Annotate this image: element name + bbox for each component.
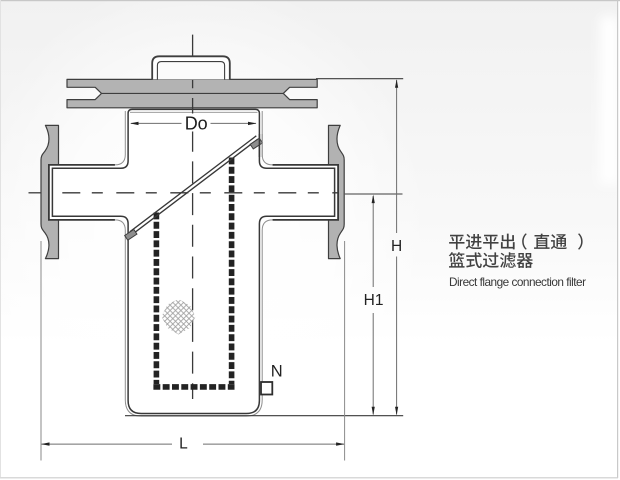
svg-text:H1: H1: [364, 292, 384, 309]
svg-text:L: L: [179, 435, 188, 452]
svg-text:N: N: [271, 362, 283, 380]
svg-text:Do: Do: [185, 113, 208, 133]
svg-text:Direct flange connection filte: Direct flange connection filter: [449, 275, 586, 289]
svg-text:H: H: [391, 238, 402, 255]
